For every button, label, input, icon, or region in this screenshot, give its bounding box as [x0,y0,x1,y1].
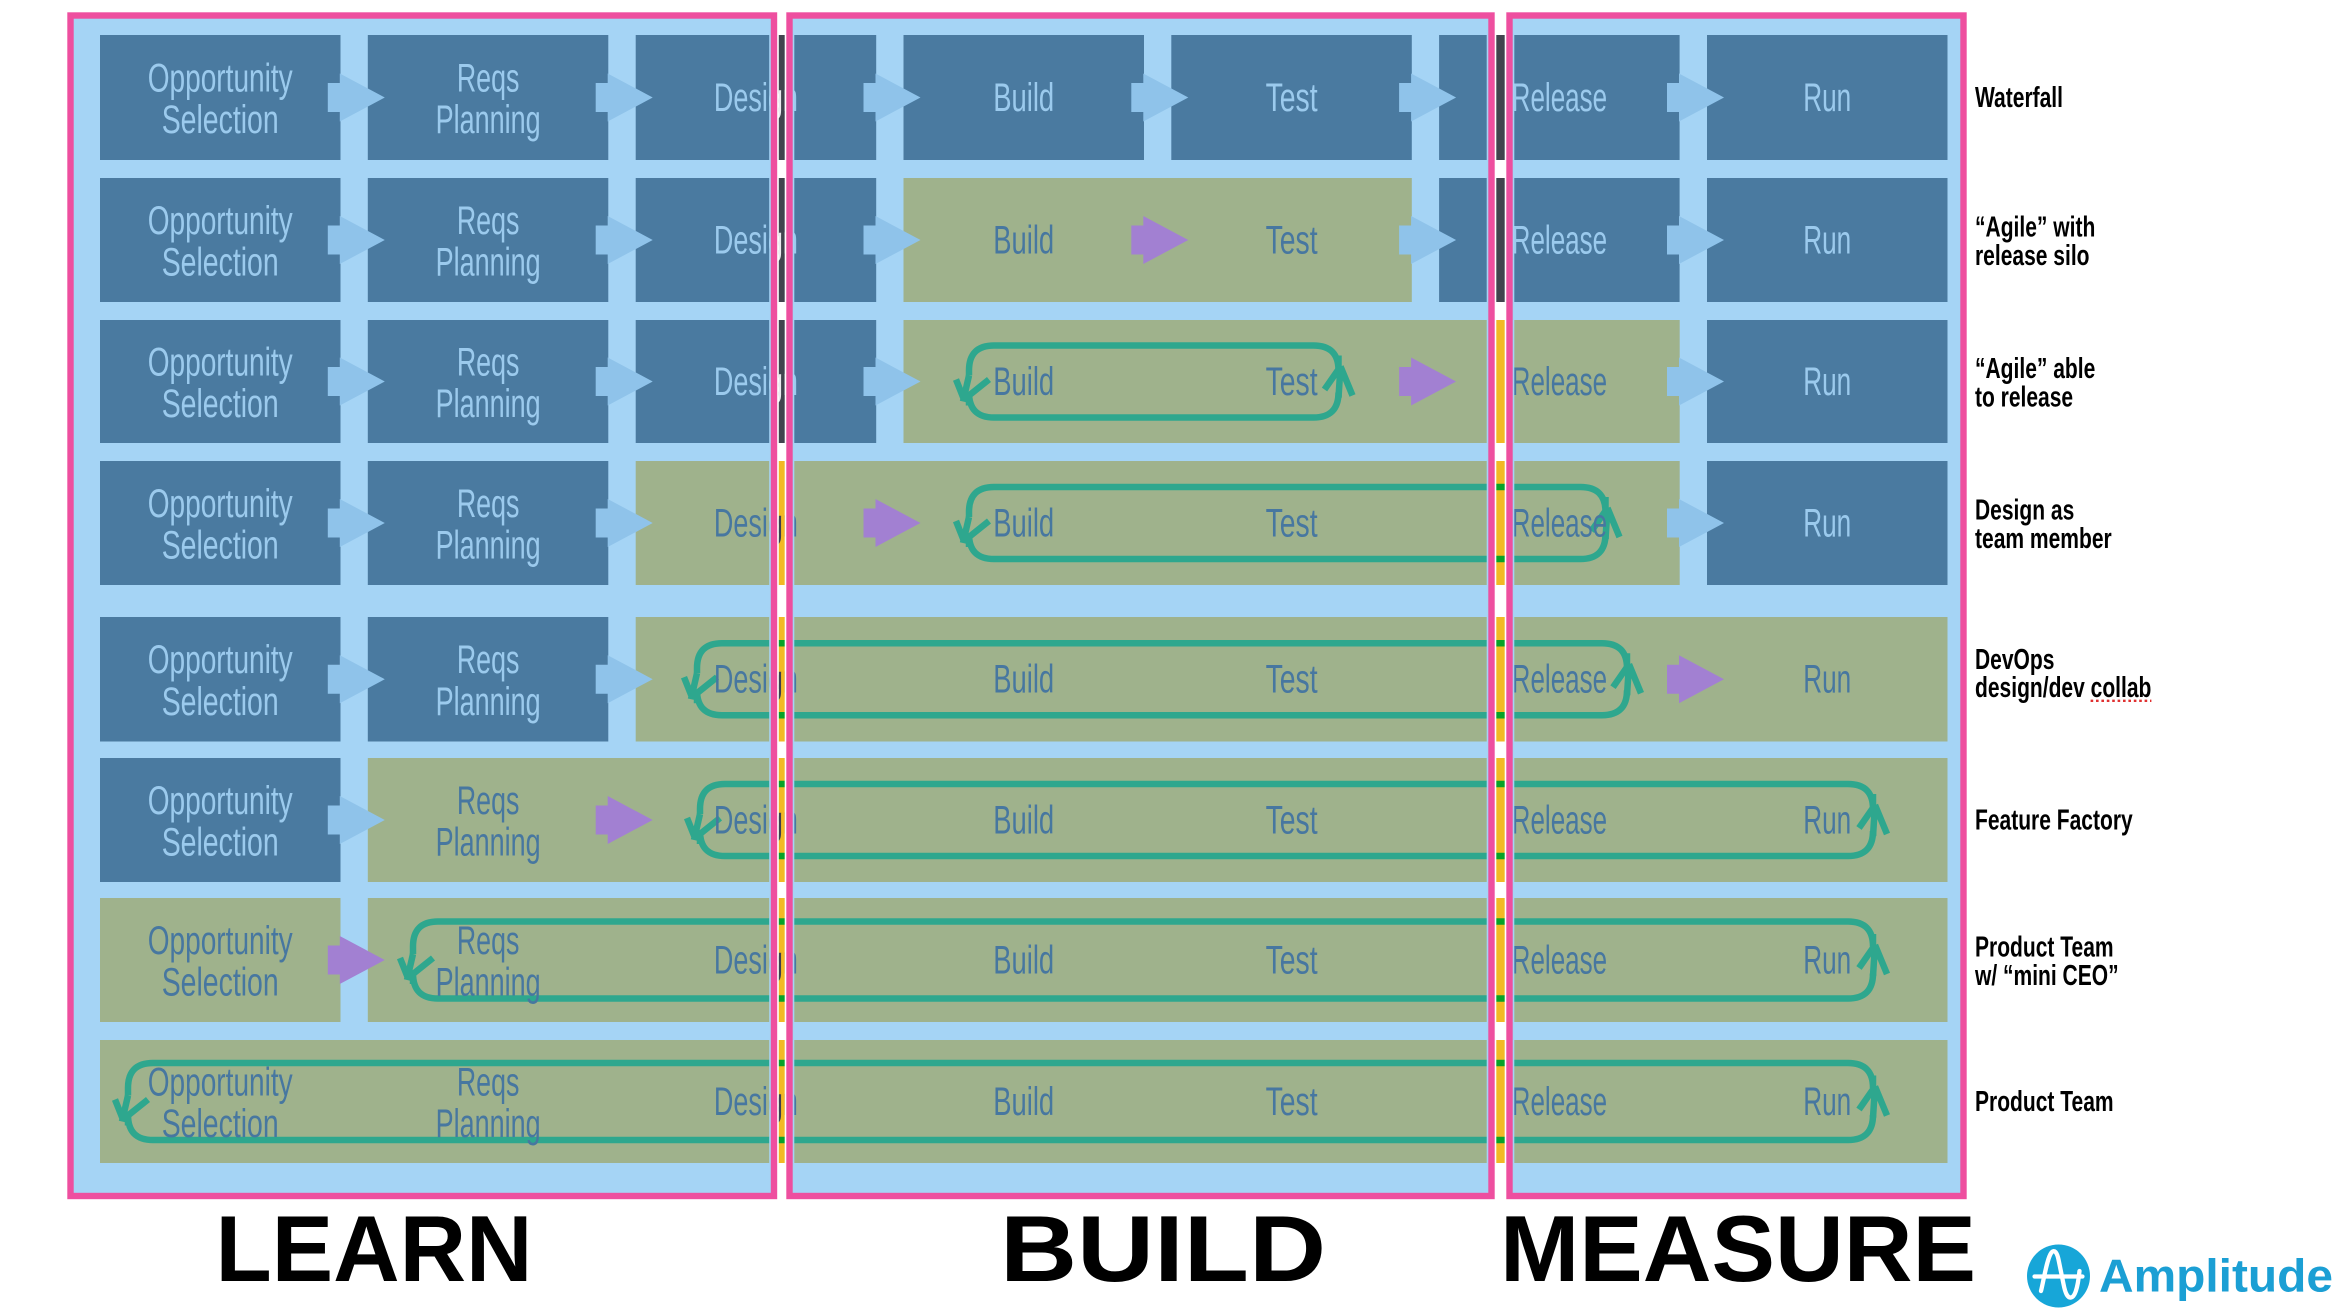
svg-text:release silo: release silo [1975,240,2090,272]
svg-text:DevOps: DevOps [1975,644,2054,676]
svg-text:Product Team: Product Team [1975,1086,2114,1118]
svg-text:“Agile” with: “Agile” with [1975,212,2095,244]
svg-text:LEARN: LEARN [216,1196,533,1301]
svg-text:“Agile” able: “Agile” able [1975,353,2095,385]
svg-text:MEASURE: MEASURE [1500,1196,1976,1301]
svg-text:Amplitude: Amplitude [2099,1250,2333,1302]
svg-text:w/ “mini CEO”: w/ “mini CEO” [1974,960,2118,992]
svg-text:Product Team: Product Team [1975,932,2114,964]
svg-text:Design as: Design as [1975,495,2074,527]
svg-text:to release: to release [1975,382,2073,414]
svg-text:BUILD: BUILD [1000,1196,1326,1301]
svg-text:design/dev collab: design/dev collab [1975,672,2151,704]
svg-text:team member: team member [1975,523,2112,555]
svg-text:Feature Factory: Feature Factory [1975,805,2133,837]
svg-text:Waterfall: Waterfall [1975,82,2063,114]
